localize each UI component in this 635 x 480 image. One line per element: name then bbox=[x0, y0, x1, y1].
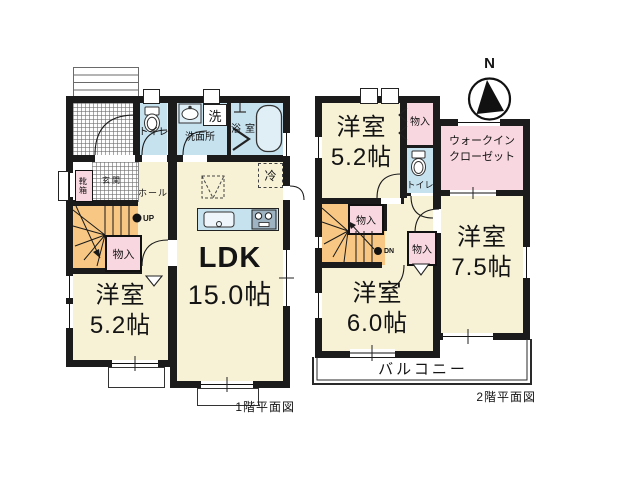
room75-door-arc bbox=[415, 209, 439, 233]
room52-door-arc bbox=[377, 174, 401, 198]
room60-size: 6.0帖 bbox=[347, 309, 408, 339]
kitchen-sink-icon bbox=[204, 212, 234, 227]
north-label: N bbox=[480, 54, 499, 72]
stairs-2f-lines bbox=[322, 208, 374, 262]
bedroom1f-label: 洋室 5.2帖 bbox=[73, 280, 168, 342]
wic-line1: ウォークイン bbox=[449, 133, 515, 149]
ldk-size: 15.0帖 bbox=[188, 277, 273, 314]
room75-size: 7.5帖 bbox=[451, 253, 512, 283]
dn-marker-dot bbox=[374, 247, 382, 255]
wic-line2: クローゼット bbox=[449, 149, 515, 165]
room60-name: 洋室 bbox=[353, 279, 403, 309]
shoebox-label: 靴箱 bbox=[76, 172, 90, 199]
backdoor-arc bbox=[290, 186, 304, 200]
washroom-label: 洗面所 bbox=[177, 129, 223, 141]
first-floor-caption: 1階平面図 bbox=[220, 399, 295, 413]
floorplan-canvas: 物入 冷 洗 物入 物入 bbox=[0, 0, 635, 480]
entrance-door-arc bbox=[95, 115, 135, 155]
wic-label: ウォークイン クローゼット bbox=[443, 132, 521, 166]
compass-icon bbox=[469, 79, 510, 120]
room52-name: 洋室 bbox=[337, 113, 387, 143]
up-label: UP bbox=[143, 213, 161, 223]
hall-label: ホール bbox=[136, 187, 170, 198]
ldk-label: LDK 15.0帖 bbox=[177, 240, 283, 314]
linework-overlay bbox=[0, 0, 635, 480]
floor-hatch-icon bbox=[202, 176, 224, 198]
toilet1f-label: トイレ bbox=[139, 124, 168, 136]
genkan-label: 玄関 bbox=[96, 175, 128, 185]
washbasin-icon bbox=[179, 104, 201, 123]
stairs-1f-arrowhead bbox=[93, 249, 100, 258]
hall-ldk-door-arc bbox=[142, 240, 168, 266]
room52-size: 5.2帖 bbox=[331, 143, 392, 173]
room52-label: 洋室 5.2帖 bbox=[322, 112, 401, 174]
second-floor-caption: 2階平面図 bbox=[466, 389, 536, 403]
storage-2f-top-label: 物入 bbox=[407, 114, 433, 126]
balcony-label: バルコニー bbox=[375, 360, 471, 376]
bath-faucet-icon bbox=[234, 103, 246, 112]
room75-name: 洋室 bbox=[457, 223, 507, 253]
bedroom1f-name: 洋室 bbox=[96, 281, 146, 311]
toilet2f-label: トイレ bbox=[407, 178, 433, 190]
up-marker-dot bbox=[133, 214, 142, 223]
dn-label: DN bbox=[384, 247, 400, 256]
bath-label: 浴室 bbox=[229, 121, 261, 133]
stove-icon bbox=[252, 210, 276, 229]
bedroom1f-size: 5.2帖 bbox=[90, 311, 151, 341]
stairs-1f-lines bbox=[73, 204, 129, 266]
toilet-icon-2f bbox=[412, 151, 426, 176]
ldk-name: LDK bbox=[199, 240, 262, 277]
room60-label: 洋室 6.0帖 bbox=[322, 278, 433, 340]
room75-label: 洋室 7.5帖 bbox=[441, 222, 523, 284]
